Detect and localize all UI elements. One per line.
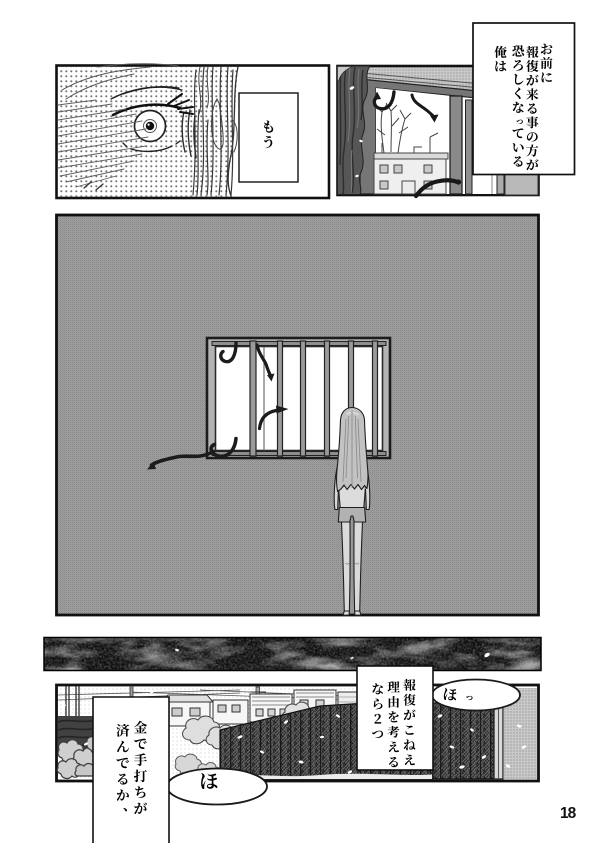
svg-text:18: 18 <box>560 805 577 822</box>
